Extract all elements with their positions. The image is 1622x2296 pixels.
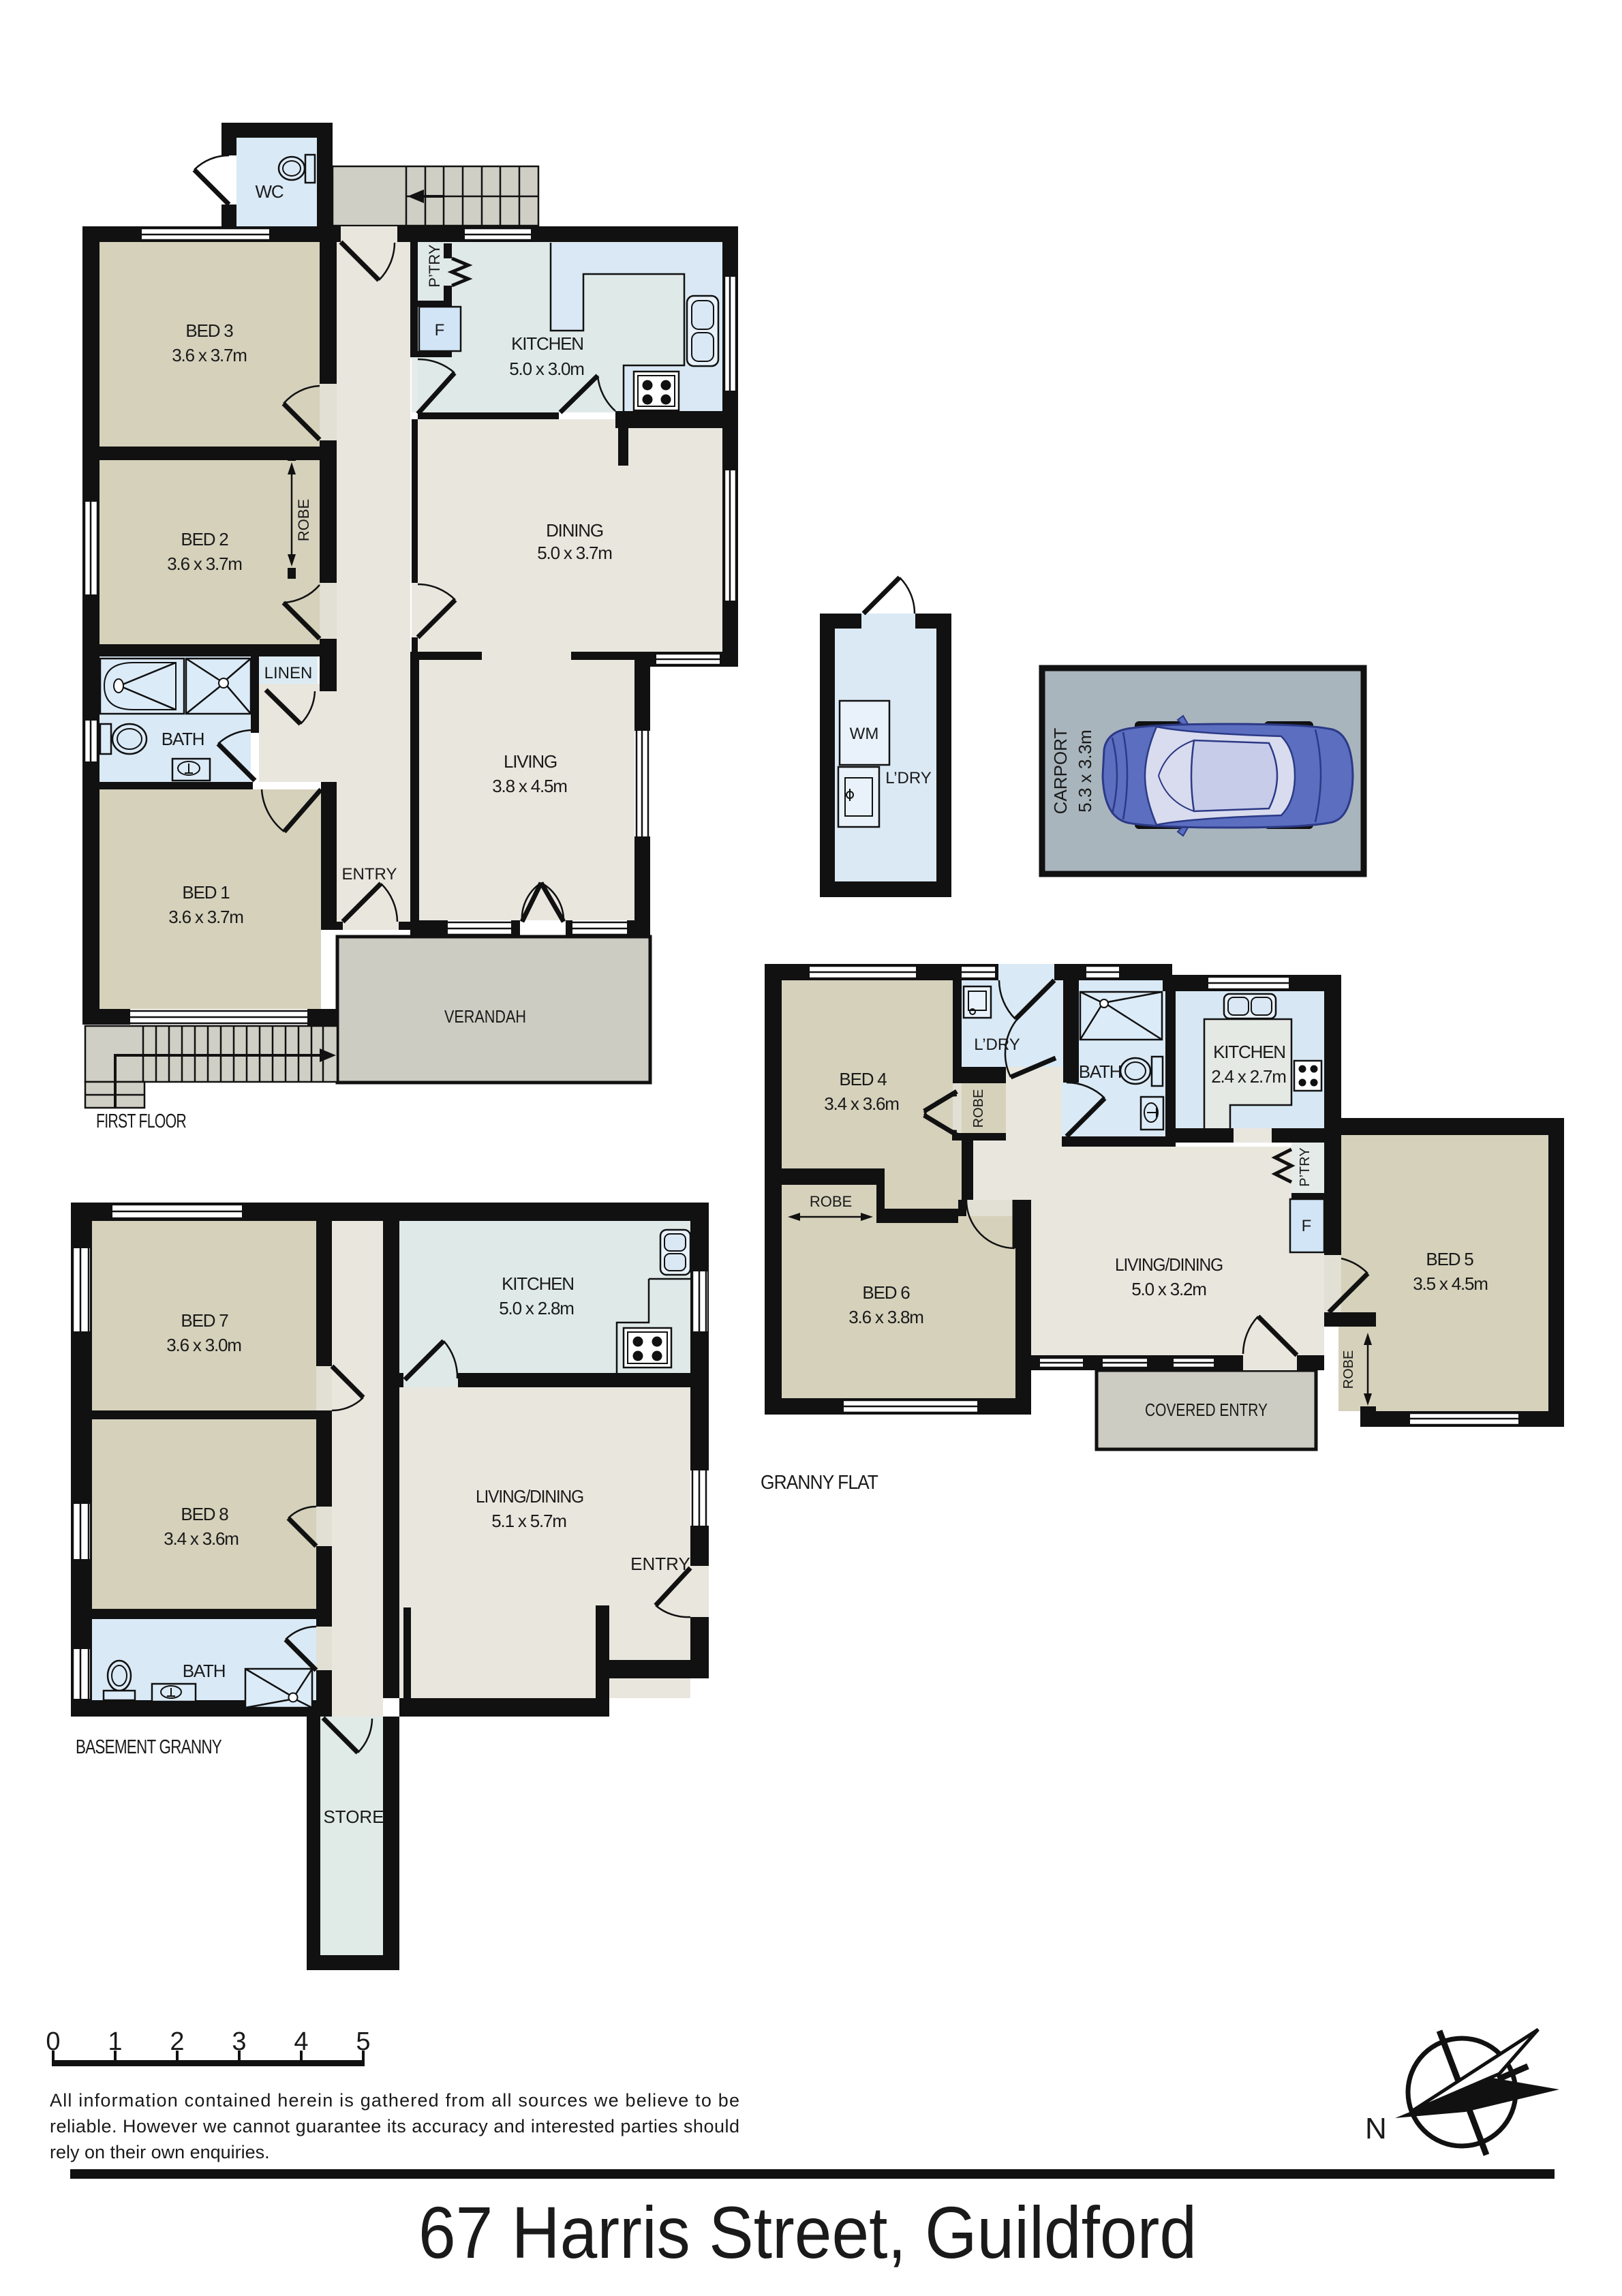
svg-text:ROBE: ROBE — [810, 1193, 852, 1210]
svg-text:VERANDAH: VERANDAH — [444, 1006, 526, 1027]
svg-text:KITCHEN: KITCHEN — [1213, 1042, 1285, 1062]
svg-text:LIVING/DINING: LIVING/DINING — [476, 1486, 583, 1507]
svg-text:STORE: STORE — [323, 1807, 384, 1827]
svg-text:BED 3: BED 3 — [185, 320, 233, 341]
svg-text:BED 5: BED 5 — [1426, 1249, 1473, 1269]
svg-text:GRANNY FLAT: GRANNY FLAT — [761, 1472, 878, 1494]
svg-text:BATH: BATH — [162, 729, 204, 749]
svg-text:F: F — [435, 321, 445, 339]
svg-text:P’TRY: P’TRY — [1298, 1147, 1313, 1186]
svg-text:BATH: BATH — [1079, 1061, 1122, 1082]
svg-text:BED 4: BED 4 — [839, 1069, 887, 1089]
svg-text:L’DRY: L’DRY — [885, 769, 932, 787]
svg-text:LINEN: LINEN — [264, 664, 313, 682]
svg-text:BATH: BATH — [183, 1661, 226, 1681]
svg-text:KITCHEN: KITCHEN — [502, 1273, 574, 1294]
svg-text:KITCHEN: KITCHEN — [511, 333, 583, 354]
svg-text:5.0 x 3.2m: 5.0 x 3.2m — [1131, 1279, 1206, 1299]
svg-text:LIVING: LIVING — [504, 751, 557, 772]
svg-text:3.6 x 3.8m: 3.6 x 3.8m — [848, 1307, 923, 1327]
svg-text:BED 6: BED 6 — [862, 1282, 910, 1303]
svg-text:N: N — [1365, 2112, 1387, 2145]
svg-text:3.4 x 3.6m: 3.4 x 3.6m — [824, 1093, 898, 1114]
svg-text:3.5 x 4.5m: 3.5 x 4.5m — [1413, 1273, 1487, 1294]
svg-text:ROBE: ROBE — [295, 499, 312, 541]
svg-text:ENTRY: ENTRY — [630, 1554, 690, 1574]
svg-text:WC: WC — [256, 181, 284, 202]
svg-text:All information contained here: All information contained herein is gath… — [50, 2090, 739, 2111]
svg-text:67 Harris Street, Guildford: 67 Harris Street, Guildford — [418, 2191, 1197, 2274]
svg-text:5.0 x 2.8m: 5.0 x 2.8m — [499, 1298, 573, 1318]
svg-text:2.4 x 2.7m: 2.4 x 2.7m — [1211, 1066, 1285, 1087]
svg-text:BED 8: BED 8 — [181, 1504, 228, 1524]
svg-text:ROBE: ROBE — [1341, 1350, 1356, 1389]
svg-text:3.6 x 3.0m: 3.6 x 3.0m — [166, 1335, 241, 1355]
svg-text:L’DRY: L’DRY — [974, 1036, 1020, 1054]
svg-text:3.6 x 3.7m: 3.6 x 3.7m — [172, 345, 246, 365]
svg-text:rely on their own enquiries.: rely on their own enquiries. — [50, 2142, 270, 2162]
svg-text:5.0 x 3.0m: 5.0 x 3.0m — [509, 359, 583, 379]
svg-text:5.1 x 5.7m: 5.1 x 5.7m — [491, 1511, 566, 1531]
svg-text:FIRST FLOOR: FIRST FLOOR — [96, 1111, 186, 1132]
svg-text:P’TRY: P’TRY — [426, 244, 443, 287]
svg-text:reliable. However we cannot gu: reliable. However we cannot guarantee it… — [50, 2116, 739, 2136]
svg-text:BASEMENT GRANNY: BASEMENT GRANNY — [76, 1736, 222, 1758]
svg-text:BED 7: BED 7 — [181, 1310, 228, 1331]
svg-text:3.6 x 3.7m: 3.6 x 3.7m — [168, 907, 243, 927]
svg-text:BED 2: BED 2 — [181, 529, 228, 549]
svg-text:3.4 x 3.6m: 3.4 x 3.6m — [164, 1528, 238, 1549]
svg-text:F: F — [1302, 1217, 1312, 1235]
svg-text:WM: WM — [850, 725, 879, 743]
svg-text:5.3 x 3.3m: 5.3 x 3.3m — [1075, 729, 1095, 812]
svg-text:ROBE: ROBE — [971, 1089, 986, 1128]
svg-text:ENTRY: ENTRY — [342, 865, 397, 883]
svg-text:3.6 x 3.7m: 3.6 x 3.7m — [167, 554, 241, 574]
svg-text:BED 1: BED 1 — [182, 882, 230, 903]
svg-text:CARPORT: CARPORT — [1050, 728, 1071, 815]
svg-text:COVERED ENTRY: COVERED ENTRY — [1145, 1400, 1268, 1420]
svg-text:5.0 x 3.7m: 5.0 x 3.7m — [537, 543, 611, 563]
svg-text:3.8 x 4.5m: 3.8 x 4.5m — [492, 776, 566, 796]
svg-text:DINING: DINING — [546, 520, 603, 541]
svg-text:LIVING/DINING: LIVING/DINING — [1115, 1254, 1223, 1275]
